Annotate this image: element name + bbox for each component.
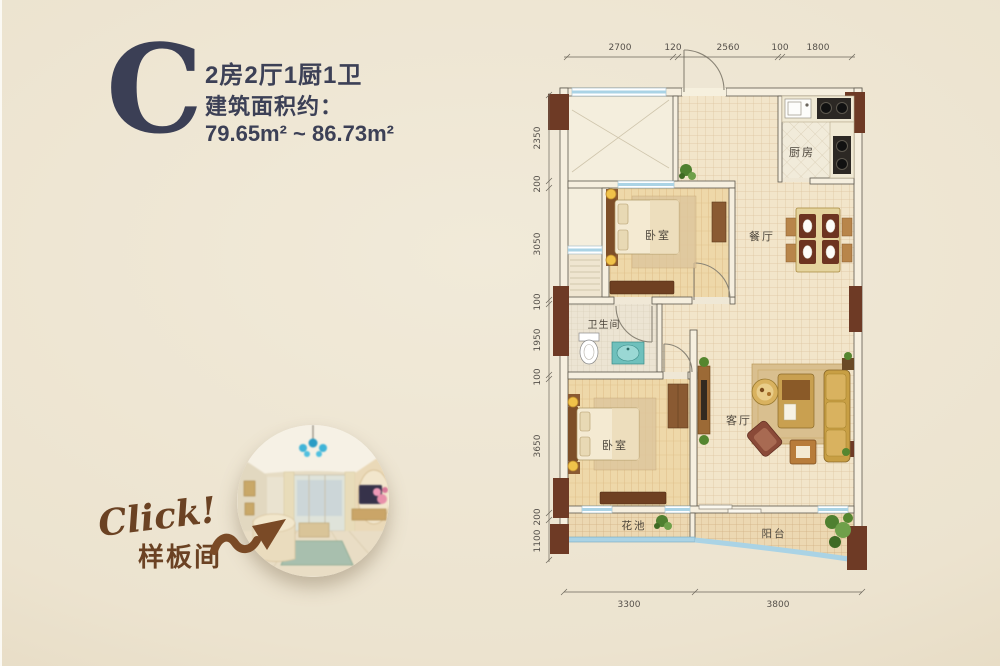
flowerbed-rail [560,537,695,542]
round-table-icon [752,379,778,405]
bedroom2-label: 卧室 [602,438,628,452]
plant-icon [699,435,709,445]
basin-icon [612,342,644,364]
dim-top-2: 120 [664,43,681,53]
squiggle-arrow-tail [214,538,257,551]
flowerbed-label: 花池 [622,519,647,532]
lamp-icon [606,189,616,199]
lamp-icon [606,255,616,265]
corridor-floor [662,304,690,372]
dim-top-3: 2560 [717,43,740,53]
lamp-icon [568,461,578,471]
living-label: 客厅 [726,413,752,427]
stove-icon [817,98,851,119]
ac-platform [568,254,602,297]
tv-console-icon [698,366,710,434]
window-icon [568,246,602,254]
dim-bottom-2: 3800 [767,600,790,610]
bathroom-label: 卫生间 [588,318,621,331]
plant-icon [844,352,852,360]
lamp-icon [568,397,578,407]
dresser-icon [600,492,666,504]
dresser-icon [610,281,674,294]
dim-left-1: 2350 [533,126,543,149]
dim-left-3: 3050 [533,232,543,255]
side-table-icon [790,440,816,464]
bedroom1-label: 卧室 [645,228,671,242]
floorplan-page: { "title": { "letter": "C", "layout": "2… [0,0,1000,666]
dim-bottom-1: 3300 [618,600,641,610]
bed-headboard [606,198,616,256]
entrance-door-icon [684,50,724,92]
dim-left-2: 200 [533,175,543,192]
window-icon [665,506,690,513]
window-icon [572,88,666,96]
dim-top-1: 2700 [609,43,632,53]
dim-left-7: 3650 [533,434,543,457]
dim-top-5: 1800 [807,43,830,53]
plant-icon [842,448,850,456]
coffee-table-icon [778,374,814,428]
dim-left-5: 1950 [533,328,543,351]
plant-icon [699,357,709,367]
sink-icon [785,99,811,118]
dim-left-6: 100 [533,368,543,385]
wardrobe-icon [712,202,726,242]
dim-left-8: 200 [533,508,543,525]
dim-left-4: 100 [533,293,543,310]
window-icon [818,506,848,513]
dim-left-9: 1100 [533,529,543,552]
dim-top-4: 100 [771,43,788,53]
dining-label: 餐厅 [749,229,775,243]
window-icon [618,181,674,188]
balcony-label: 阳台 [762,527,787,540]
arrow-to-sample[interactable] [202,505,302,565]
toilet-icon [579,333,599,364]
kitchen-label: 厨房 [789,146,815,159]
entrance-opening [682,88,726,96]
bed-headboard [568,406,578,462]
window-icon [582,506,612,513]
stove-icon [833,136,851,174]
